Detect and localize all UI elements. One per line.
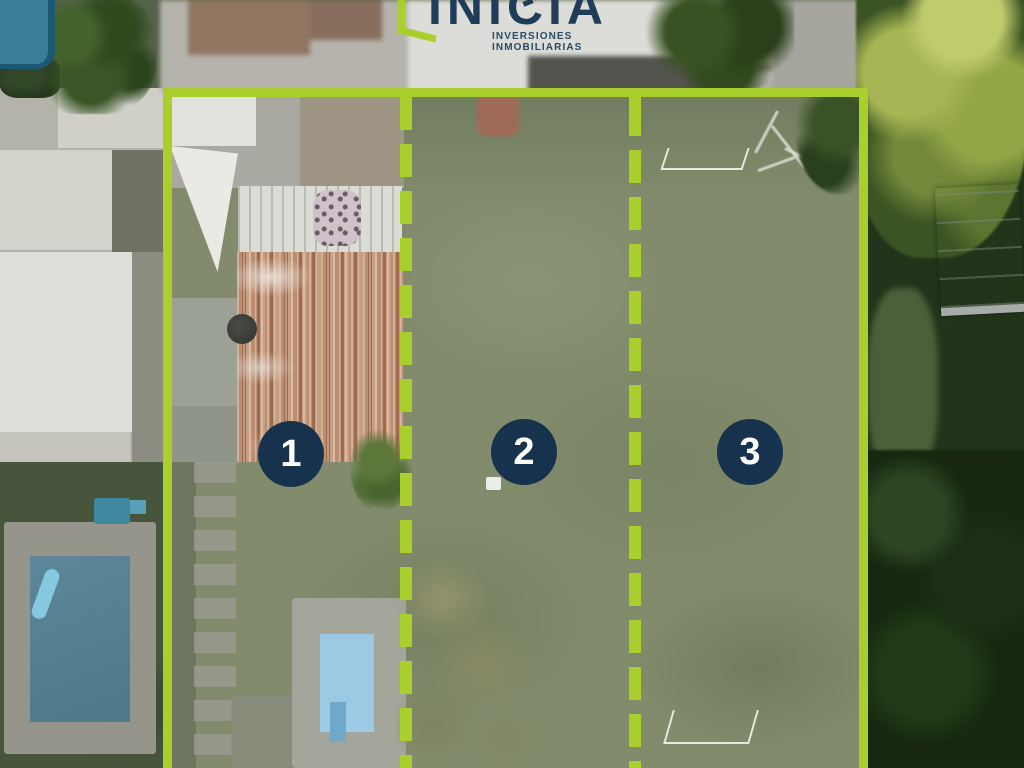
neighbor-pool-deck <box>4 522 156 754</box>
pool-equipment <box>94 498 130 524</box>
neighbor-pool-water <box>30 556 130 722</box>
lot-3-number: 3 <box>739 431 760 473</box>
lot-1-badge: 1 <box>258 421 324 487</box>
neighbor-roof-edge <box>132 252 166 480</box>
brand-tagline: INVERSIONES INMOBILIARIAS <box>492 31 650 53</box>
neighbor-roof-brown <box>310 0 382 40</box>
neighbor-roof-brown <box>188 0 310 55</box>
tree-canopy-top <box>642 0 794 94</box>
neighbor-roofs-left <box>0 88 166 480</box>
pool-float <box>30 567 62 621</box>
neighbor-roof-section <box>0 150 112 250</box>
lot-2-badge: 2 <box>491 419 557 485</box>
lot-3-badge: 3 <box>717 419 783 485</box>
brand-name: INICIA <box>428 0 608 32</box>
brand-logo: INICIA INVERSIONES INMOBILIARIAS <box>390 0 650 60</box>
neighbor-roof-section <box>0 252 132 432</box>
neighbor-pool-corner <box>0 0 55 69</box>
garden-shed <box>935 184 1024 316</box>
lot-1-number: 1 <box>280 433 301 475</box>
lot-divider-1 <box>400 97 412 768</box>
lot-divider-2 <box>629 97 641 768</box>
neighbor-roof-gap <box>112 150 165 252</box>
dense-foliage <box>860 450 1024 768</box>
lot-2-number: 2 <box>513 431 534 473</box>
aerial-photo: 1 2 3 INICIA INVERSIONES INMOBILIARIAS <box>0 0 1024 768</box>
